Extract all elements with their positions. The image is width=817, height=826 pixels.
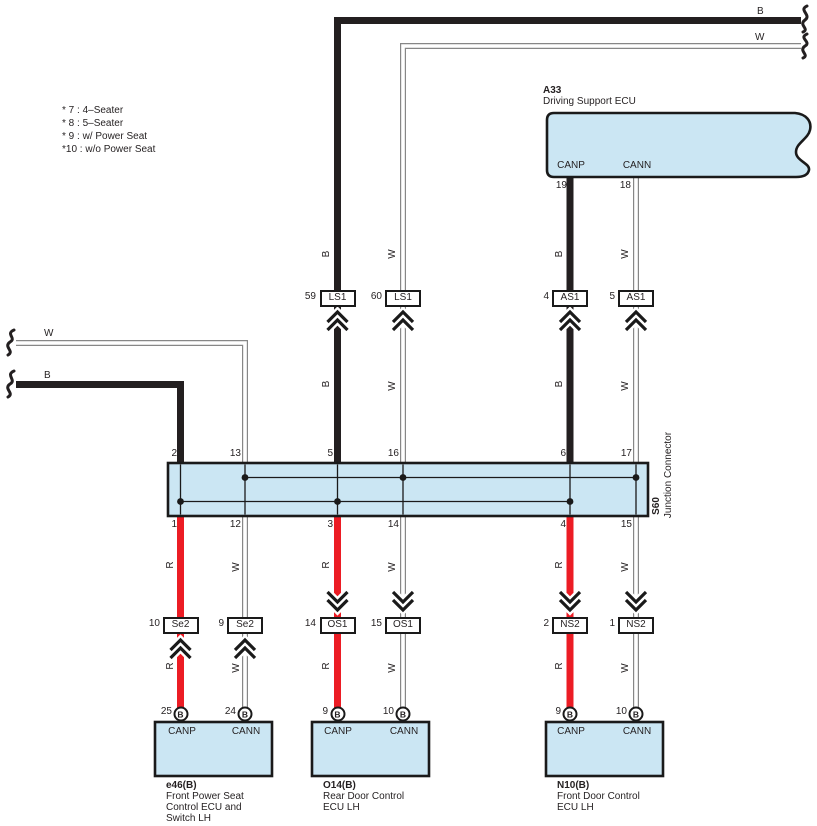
terminal-letter: B (567, 709, 573, 719)
wire-color-label-b: B (555, 251, 565, 258)
wire-color-label-w: W (388, 381, 398, 390)
bus-junction-dot (334, 498, 341, 505)
junction-bottom-pin: 15 (621, 520, 632, 530)
ecu-desc-line: ECU LH (557, 803, 594, 813)
connector-pin-number: 1 (609, 619, 615, 629)
ecu-cann-label: CANN (623, 727, 651, 737)
a33-canp-label: CANP (557, 161, 585, 171)
junction-top-pin: 17 (621, 449, 632, 459)
ecu-id: e46(B) (166, 781, 197, 791)
white-wire-left-junction (16, 343, 245, 464)
a33-id: A33 (543, 86, 561, 96)
wire-color-label-w: W (388, 249, 398, 258)
connector-code: LS1 (329, 292, 347, 303)
legend-item: *10 : w/o Power Seat (62, 145, 155, 155)
connector-code: NS2 (560, 619, 579, 630)
terminal-letter: B (400, 709, 406, 719)
wire-color-label-w: W (755, 33, 764, 43)
ecu-pin-number: 9 (322, 707, 328, 717)
wire-color-label-b: B (44, 371, 51, 381)
wire-color-label-w: W (621, 663, 631, 672)
wire-color-label-w: W (621, 381, 631, 390)
wire-color-label-r: R (322, 561, 332, 568)
terminal-letter: B (242, 709, 248, 719)
connector-pin-number: 15 (371, 619, 382, 629)
connector-pin-number: 9 (218, 619, 224, 629)
a33-ecu-box (547, 113, 810, 177)
wire-color-label-b: B (322, 251, 332, 258)
ecu-id: N10(B) (557, 781, 589, 791)
wire-color-label-r: R (555, 561, 565, 568)
connector-os1-15: OS1 (385, 617, 421, 634)
connector-code: NS2 (626, 619, 645, 630)
connector-ls1-60: LS1 (385, 290, 421, 307)
wire-color-label-w: W (621, 562, 631, 571)
ecu-desc-line: Front Power Seat (166, 792, 244, 802)
ecu-id: O14(B) (323, 781, 356, 791)
connector-code: OS1 (393, 619, 413, 630)
connector-ns2-2: NS2 (552, 617, 588, 634)
connector-pin-number: 10 (149, 619, 160, 629)
wire-color-label-w: W (388, 663, 398, 672)
a33-name: Driving Support ECU (543, 97, 636, 107)
wire-break-left-b (8, 371, 14, 397)
legend-item: * 8 : 5–Seater (62, 119, 123, 129)
connector-pin-number: 4 (543, 292, 549, 302)
ecu-pin-number: 24 (225, 707, 236, 717)
legend-item: * 7 : 4–Seater (62, 106, 123, 116)
connector-as1-5: AS1 (618, 290, 654, 307)
ecu-pin-number: 9 (555, 707, 561, 717)
terminal-circle: B (396, 707, 411, 722)
connector-code: LS1 (394, 292, 412, 303)
wire-break-left-w (8, 330, 14, 355)
junction-top-pin: 16 (388, 449, 399, 459)
legend-item: * 9 : w/ Power Seat (62, 132, 147, 142)
junction-top-pin: 13 (230, 449, 241, 459)
wire-color-label-w: W (388, 562, 398, 571)
junction-name: Junction Connector (664, 432, 674, 518)
wire-break-right-w (803, 34, 807, 58)
junction-top-pin: 5 (327, 449, 333, 459)
junction-connector-box (168, 463, 648, 516)
bus-junction-dot (242, 474, 249, 481)
bus-junction-dot (633, 474, 640, 481)
terminal-circle: B (330, 707, 345, 722)
terminal-circle: B (563, 707, 578, 722)
a33-cann-pin: 18 (620, 181, 631, 191)
wire-color-label-w: W (232, 663, 242, 672)
connector-ls1-59: LS1 (320, 290, 356, 307)
ecu-desc-line: Rear Door Control (323, 792, 404, 802)
junction-bottom-pin: 14 (388, 520, 399, 530)
ecu-pin-number: 10 (383, 707, 394, 717)
connector-pin-number: 60 (371, 292, 382, 302)
wire-color-label-w: W (44, 329, 53, 339)
connector-code: Se2 (236, 619, 254, 630)
junction-top-pin: 6 (560, 449, 566, 459)
ecu-cann-label: CANN (390, 727, 418, 737)
wire-break-right-b (803, 6, 807, 32)
ecu-desc-line: Front Door Control (557, 792, 640, 802)
connector-code: AS1 (627, 292, 646, 303)
junction-bottom-pin: 3 (327, 520, 333, 530)
wire-color-label-b: B (757, 7, 764, 17)
white-wire-left-junction-core (16, 343, 245, 464)
terminal-circle: B (629, 707, 644, 722)
terminal-circle: B (238, 707, 253, 722)
wire-color-label-b: B (322, 381, 332, 388)
connector-code: Se2 (172, 619, 190, 630)
connector-os1-14: OS1 (320, 617, 356, 634)
wire-color-label-w: W (232, 562, 242, 571)
ecu-desc-line: ECU LH (323, 803, 360, 813)
ecu-desc-line: Control ECU and (166, 803, 242, 813)
bus-junction-dot (177, 498, 184, 505)
connector-pin-number: 59 (305, 292, 316, 302)
connector-pin-number: 2 (543, 619, 549, 629)
wire-color-label-r: R (322, 662, 332, 669)
ecu-cann-label: CANN (232, 727, 260, 737)
ecu-canp-label: CANP (168, 727, 196, 737)
connector-se2-9: Se2 (227, 617, 263, 634)
wire-color-label-b: B (555, 381, 565, 388)
connector-ns2-1: NS2 (618, 617, 654, 634)
wire-color-label-r: R (166, 662, 176, 669)
terminal-letter: B (633, 709, 639, 719)
junction-bottom-pin: 1 (171, 520, 177, 530)
connector-pin-number: 14 (305, 619, 316, 629)
connector-code: AS1 (561, 292, 580, 303)
bus-junction-dot (567, 498, 574, 505)
junction-top-pin: 2 (171, 449, 177, 459)
wiring-diagram: * 7 : 4–Seater * 8 : 5–Seater * 9 : w/ P… (0, 0, 817, 826)
terminal-letter: B (177, 709, 183, 719)
connector-pin-number: 5 (609, 292, 615, 302)
bus-junction-dot (400, 474, 407, 481)
connector-code: OS1 (327, 619, 347, 630)
wire-color-label-r: R (555, 662, 565, 669)
ecu-desc-line: Switch LH (166, 814, 211, 824)
junction-bottom-pin: 4 (560, 520, 566, 530)
wire-color-label-w: W (621, 249, 631, 258)
connector-se2-10: Se2 (163, 617, 199, 634)
junction-id: S60 (652, 497, 662, 515)
ecu-pin-number: 25 (161, 707, 172, 717)
connector-as1-4: AS1 (552, 290, 588, 307)
ecu-canp-label: CANP (557, 727, 585, 737)
terminal-letter: B (334, 709, 340, 719)
wire-color-label-r: R (166, 561, 176, 568)
ecu-pin-number: 10 (616, 707, 627, 717)
a33-cann-label: CANN (623, 161, 651, 171)
black-wire-left-junction (16, 385, 181, 465)
junction-bottom-pin: 12 (230, 520, 241, 530)
terminal-circle: B (173, 707, 188, 722)
ecu-canp-label: CANP (324, 727, 352, 737)
a33-canp-pin: 19 (556, 181, 567, 191)
